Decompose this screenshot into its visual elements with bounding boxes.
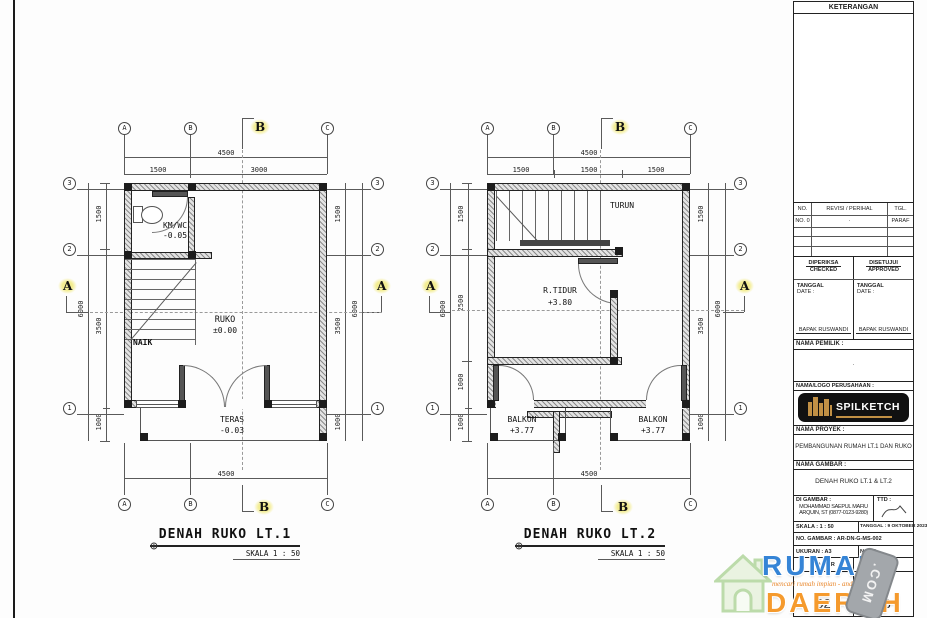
drawing-sheet: A B C B 4500 1500 3000 6000 1500 3500 10… <box>0 0 927 618</box>
grid-leader <box>190 443 191 495</box>
wall-segment <box>487 183 690 191</box>
rev-cell <box>812 237 888 246</box>
column <box>682 433 690 441</box>
column <box>319 183 327 191</box>
rev-header: REVISI / PERIHAL <box>812 203 888 216</box>
building-icon <box>807 394 833 421</box>
dim-label: 3500 <box>697 311 705 341</box>
dim-tick <box>622 170 623 178</box>
dim-label: 1500 <box>334 199 342 229</box>
grid-bubble-3: 3 <box>426 177 439 190</box>
column <box>610 433 618 441</box>
section-line <box>242 485 243 511</box>
title-underline <box>150 545 300 547</box>
grid-bubble-c: C <box>684 498 697 511</box>
company-logo-row: SPILKETCH <box>793 391 914 426</box>
room-level-tidur: +3.80 <box>530 298 590 307</box>
window <box>271 400 317 408</box>
dim-label: 1000 <box>457 407 465 437</box>
rev-cell <box>812 247 888 256</box>
grid-leader <box>440 255 487 256</box>
datum-icon: ⊕ <box>515 539 523 554</box>
column <box>490 433 498 441</box>
grid-leader <box>77 255 124 256</box>
section-marker-b: B <box>613 499 633 515</box>
drawing-name-value: DENAH RUKO LT.1 & LT.2 <box>793 470 914 496</box>
revision-table: NO. REVISI / PERIHAL TGL. NO. 0 · PARAF <box>793 203 914 257</box>
grid-leader <box>77 189 124 190</box>
terrace-outline <box>140 408 327 441</box>
grid-bubble-1: 1 <box>734 402 747 415</box>
dim-label: 4500 <box>207 149 245 157</box>
dim-line <box>487 174 690 175</box>
section-marker-b: B <box>250 119 270 135</box>
column <box>124 183 132 191</box>
dim-label: 1500 <box>637 166 675 174</box>
dim-line <box>468 183 469 441</box>
dim-label: 6000 <box>439 294 447 324</box>
keterangan-box <box>793 14 914 203</box>
rev-cell <box>794 228 812 237</box>
section-line <box>744 296 745 312</box>
drawn-by-name: MOHAMMAD SAEPUL MAFIU ARQUIN, ST (0877-0… <box>795 504 872 516</box>
owner-label: NAMA PEMILIK : <box>793 340 914 350</box>
wall-segment <box>124 252 212 259</box>
grid-bubble-1: 1 <box>63 402 76 415</box>
grid-leader <box>690 189 734 190</box>
dim-label: 2500 <box>457 288 465 318</box>
section-line <box>723 312 744 313</box>
grid-bubble-a: A <box>481 498 494 511</box>
grid-bubble-2: 2 <box>371 243 384 256</box>
grid-leader <box>553 443 554 495</box>
grid-bubble-b: B <box>184 498 197 511</box>
dim-line <box>124 157 327 158</box>
rev-cell: · <box>812 216 888 228</box>
dim-tick <box>462 361 472 362</box>
column <box>610 357 618 365</box>
column <box>682 183 690 191</box>
section-marker-a: A <box>421 278 440 294</box>
owner-box: · <box>793 350 914 382</box>
room-label-kmwc: KM/WC <box>150 221 200 230</box>
section-marker-b: B <box>254 499 274 515</box>
section-line <box>381 296 382 312</box>
room-level-balkon2: +3.77 <box>626 426 680 435</box>
dim-line <box>487 478 690 479</box>
section-line <box>242 511 254 512</box>
grid-leader <box>690 414 734 415</box>
column <box>188 251 196 259</box>
rev-cell <box>794 237 812 246</box>
column <box>615 247 623 255</box>
wall-segment <box>124 183 327 191</box>
approved-date: TANGGALDATE : <box>857 283 911 295</box>
grid-leader <box>553 135 554 174</box>
grid-bubble-a: A <box>118 498 131 511</box>
column <box>487 183 495 191</box>
window <box>136 400 180 408</box>
dim-label: 1500 <box>570 166 608 174</box>
dim-line <box>124 478 327 479</box>
plan1-title: DENAH RUKO LT.1 <box>150 527 300 542</box>
grid-bubble-b: B <box>547 122 560 135</box>
grid-leader <box>690 443 691 495</box>
grid-bubble-2: 2 <box>426 243 439 256</box>
grid-bubble-1: 1 <box>371 402 384 415</box>
stair-label: TURUN <box>600 201 644 210</box>
dim-tick <box>327 153 328 161</box>
grid-bubble-b: B <box>547 498 560 511</box>
grid-leader <box>124 443 125 495</box>
drawing-name-label: NAMA GAMBAR : <box>793 461 914 470</box>
dim-label: 3000 <box>240 166 278 174</box>
divider <box>858 522 859 533</box>
scale-date-row: SKALA : 1 : 50 TANGGAL : 9 OKTOBER 2023 <box>793 522 914 533</box>
grid-leader <box>690 255 734 256</box>
titleblock-header: KETERANGAN <box>793 1 914 14</box>
watermark-tagline: mencari rumah impian - anda <box>772 580 856 588</box>
grid-leader <box>77 414 124 415</box>
rev-cell <box>794 247 812 256</box>
room-level-kmwc: -0.05 <box>150 231 200 240</box>
rev-cell: PARAF <box>888 216 913 228</box>
dim-label: 3500 <box>95 311 103 341</box>
stair-landing <box>520 240 610 246</box>
room-level-ruko: ±0.00 <box>195 326 255 335</box>
grid-bubble-b: B <box>184 122 197 135</box>
dim-label: 1000 <box>95 407 103 437</box>
wall-segment <box>487 249 623 257</box>
grid-bubble-c: C <box>321 122 334 135</box>
grid-bubble-a: A <box>481 122 494 135</box>
wall-segment <box>610 292 618 365</box>
door-leaf <box>681 365 687 401</box>
drawn-by-row: DI GAMBAR : MOHAMMAD SAEPUL MAFIU ARQUIN… <box>793 496 914 522</box>
rev-cell: NO. 0 <box>794 216 812 228</box>
stair-label: NAIK <box>133 338 152 347</box>
drawing-no-row: NO. GAMBAR : AR-DN-G-MS-002 <box>793 533 914 546</box>
rev-header: TGL. <box>888 203 913 216</box>
door-arc <box>183 365 225 407</box>
column <box>319 400 327 408</box>
dim-label: 1000 <box>697 407 705 437</box>
checked-label: DIPERIKSACHECKED <box>794 260 853 273</box>
company-label: NAMA/LOGO PERUSAHAAN : <box>793 382 914 391</box>
checked-date: TANGGALDATE : <box>797 283 851 295</box>
dim-line <box>88 183 89 441</box>
grid-bubble-c: C <box>684 122 697 135</box>
approval-block: DIPERIKSACHECKED DISETUJUIAPPROVED TANGG… <box>793 257 914 340</box>
grid-leader <box>440 414 487 415</box>
dim-label: 4500 <box>570 149 608 157</box>
grid-leader <box>440 189 487 190</box>
grid-leader <box>190 135 191 174</box>
dim-tick <box>487 153 488 161</box>
rev-cell <box>812 228 888 237</box>
dim-line <box>487 157 690 158</box>
column <box>140 433 148 441</box>
room-label-ruko: RUKO <box>195 315 255 325</box>
rev-header: NO. <box>794 203 812 216</box>
divider <box>794 279 913 280</box>
dim-label: 1500 <box>457 199 465 229</box>
rev-cell <box>888 228 913 237</box>
section-marker-a: A <box>735 278 754 294</box>
dim-tick <box>462 441 472 442</box>
section-marker-b: B <box>610 119 630 135</box>
grid-leader <box>327 189 371 190</box>
section-line <box>601 511 613 512</box>
door-arc <box>225 365 267 407</box>
wall-segment <box>487 357 622 365</box>
dim-label: 6000 <box>77 294 85 324</box>
grid-bubble-a: A <box>118 122 131 135</box>
column <box>124 400 132 408</box>
column <box>558 433 566 441</box>
dim-tick <box>554 170 555 178</box>
sheet-border-line <box>13 0 15 618</box>
dim-label: 1000 <box>334 407 342 437</box>
drawn-by-label: DI GAMBAR : <box>796 497 872 503</box>
grid-bubble-2: 2 <box>734 243 747 256</box>
dim-label: 3500 <box>334 311 342 341</box>
grid-leader <box>327 443 328 495</box>
dim-line <box>708 183 709 441</box>
room-label-balkon2: BALKON <box>626 415 680 424</box>
dim-line <box>124 174 327 175</box>
section-line <box>429 296 430 312</box>
room-level-teras: -0.03 <box>197 426 267 435</box>
section-line <box>66 312 88 313</box>
scale-underline <box>233 559 300 560</box>
dim-tick <box>190 170 191 178</box>
dim-label: 4500 <box>570 470 608 478</box>
section-line <box>66 296 67 312</box>
section-line <box>601 485 602 511</box>
column <box>610 290 618 298</box>
room-label-teras: TERAS <box>197 415 267 424</box>
door-arc <box>499 365 534 400</box>
section-line <box>429 312 451 313</box>
grid-bubble-3: 3 <box>371 177 384 190</box>
column <box>319 433 327 441</box>
dim-tick <box>100 249 110 250</box>
date-cell: TANGGAL : 9 OKTOBER 2023 <box>860 524 912 529</box>
room-label-tidur: R.TIDUR <box>530 286 590 295</box>
dim-tick <box>690 153 691 161</box>
plan2-scale: SKALA 1 : 50 <box>580 549 665 558</box>
project-value: PEMBANGUNAN RUMAH LT.1 DAN RUKO <box>793 435 914 461</box>
dim-label: 6000 <box>351 294 359 324</box>
project-label: NAMA PROYEK : <box>793 426 914 435</box>
dim-label: 1500 <box>697 199 705 229</box>
spilketch-logo: SPILKETCH <box>798 393 909 422</box>
plan2-title: DENAH RUKO LT.2 <box>515 527 665 542</box>
balcony-outline <box>490 408 566 441</box>
approved-label: DISETUJUIAPPROVED <box>854 260 913 273</box>
dim-label: 1500 <box>502 166 540 174</box>
divider <box>873 496 874 522</box>
dim-tick <box>124 153 125 161</box>
grid-bubble-3: 3 <box>63 177 76 190</box>
column <box>188 183 196 191</box>
dim-label: 1500 <box>95 199 103 229</box>
logo-text: SPILKETCH <box>836 401 900 413</box>
checked-name: BAPAK RUSWANDI <box>794 327 853 334</box>
dim-tick <box>462 183 472 184</box>
grid-leader <box>487 443 488 495</box>
approved-name: BAPAK RUSWANDI <box>854 327 913 334</box>
dim-tick <box>100 441 110 442</box>
plan1-scale: SKALA 1 : 50 <box>215 549 300 558</box>
room-level-balkon1: +3.77 <box>495 426 549 435</box>
column <box>264 400 272 408</box>
dim-tick <box>100 183 110 184</box>
dim-label: 1000 <box>457 367 465 397</box>
dim-tick <box>462 249 472 250</box>
rev-cell <box>888 237 913 246</box>
grid-bubble-3: 3 <box>734 177 747 190</box>
column <box>178 400 186 408</box>
center-line <box>452 310 744 311</box>
section-marker-a: A <box>372 278 391 294</box>
title-underline <box>515 545 665 547</box>
logo-subtitle-line <box>836 416 892 418</box>
door-arc <box>646 365 681 400</box>
rev-cell <box>888 247 913 256</box>
scale-underline <box>598 559 665 560</box>
datum-icon: ⊕ <box>150 539 158 554</box>
column <box>682 400 690 408</box>
grid-leader <box>327 414 371 415</box>
section-marker-a: A <box>58 278 77 294</box>
grid-bubble-2: 2 <box>63 243 76 256</box>
scale-cell: SKALA : 1 : 50 <box>796 524 856 530</box>
grid-leader <box>327 255 371 256</box>
column <box>124 251 132 259</box>
stamp-text: .COM <box>858 562 885 607</box>
dim-label: 1500 <box>139 166 177 174</box>
balcony-outline <box>610 408 690 441</box>
room-label-balkon1: BALKON <box>495 415 549 424</box>
column <box>487 400 495 408</box>
grid-bubble-c: C <box>321 498 334 511</box>
grid-bubble-1: 1 <box>426 402 439 415</box>
dim-label: 6000 <box>714 294 722 324</box>
dim-label: 4500 <box>207 470 245 478</box>
